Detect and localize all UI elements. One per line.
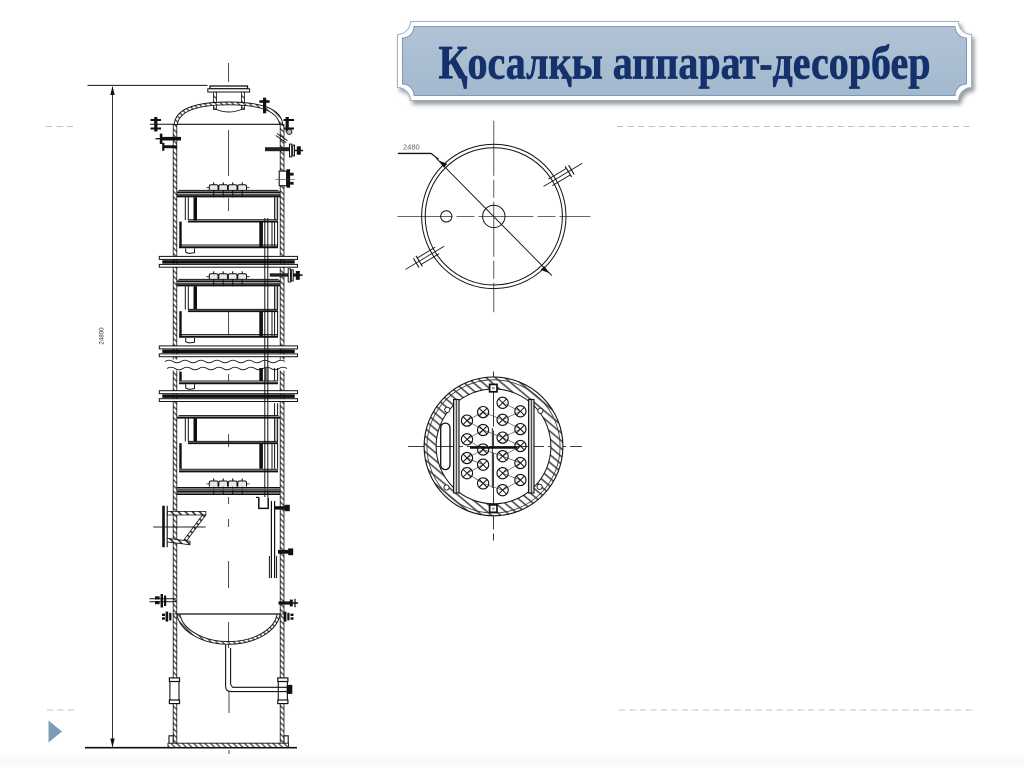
svg-text:2480: 2480	[403, 143, 420, 152]
svg-text:24800: 24800	[99, 327, 106, 345]
svg-text:Қосалқы аппарат-десорбер: Қосалқы аппарат-десорбер	[439, 37, 931, 90]
